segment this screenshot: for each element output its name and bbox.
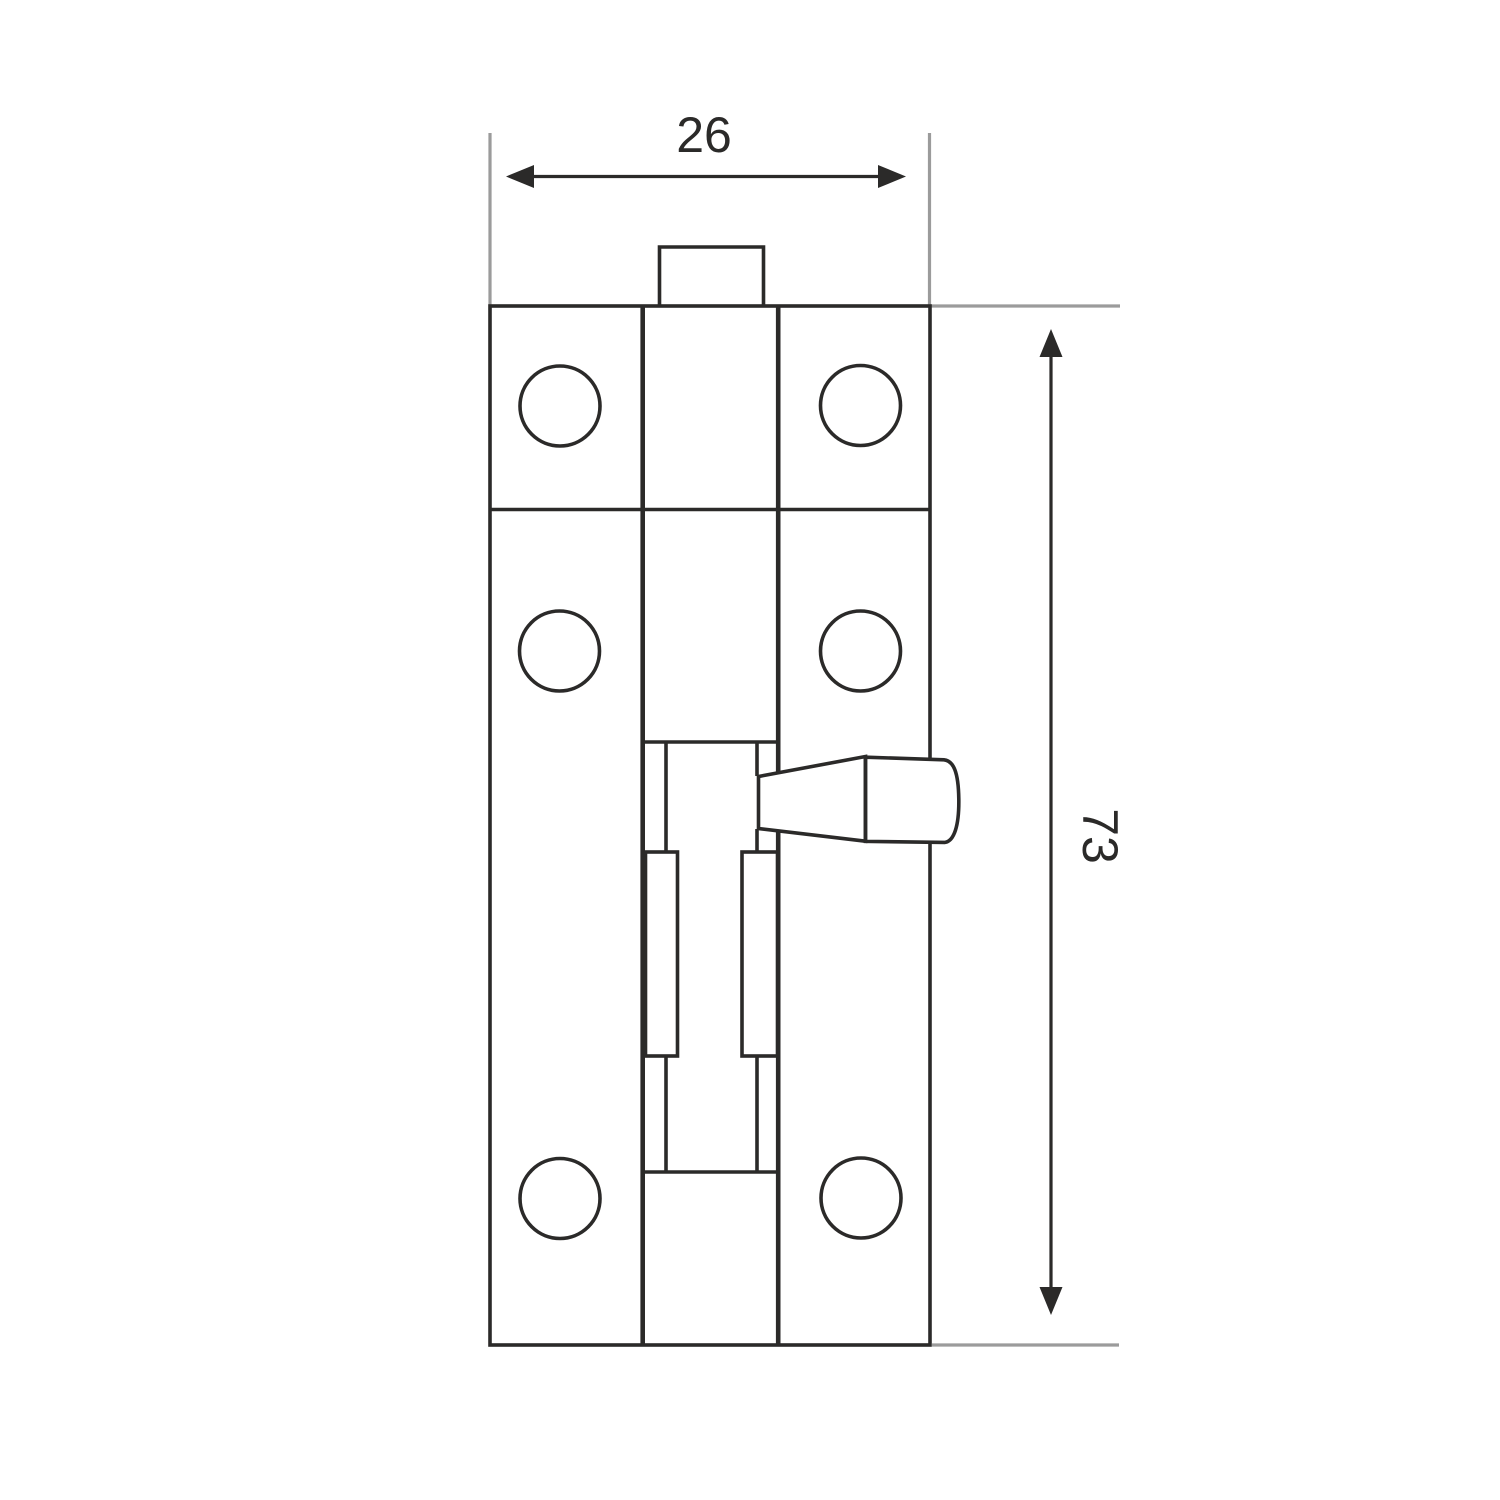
svg-text:73: 73 [1072, 808, 1128, 864]
svg-text:26: 26 [676, 107, 732, 163]
